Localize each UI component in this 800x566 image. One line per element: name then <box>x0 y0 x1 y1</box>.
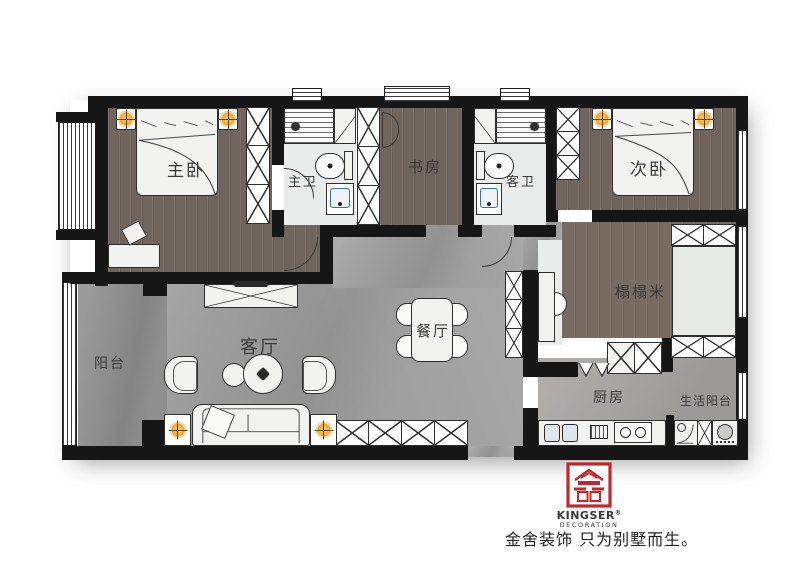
lamp-icon <box>317 424 330 437</box>
second-bed <box>612 108 694 196</box>
study-window <box>384 86 450 102</box>
label-service-balcony: 生活阳台 <box>680 392 732 409</box>
wall-study-guestbath <box>462 96 474 237</box>
coffee-table-large <box>243 354 283 394</box>
bay-window-cap-top <box>56 112 108 122</box>
master-toilet <box>315 153 345 179</box>
master-wardrobe <box>246 108 270 224</box>
bedroom2-wardrobe <box>556 108 580 180</box>
tatami-desk <box>538 272 555 342</box>
label-master-bath: 主卫 <box>288 171 318 190</box>
wall-bedroom2-bottom-a <box>546 210 558 222</box>
bedroom2-nightstand-left <box>592 108 612 130</box>
registered-mark: ® <box>615 509 622 516</box>
master-toilet-tank <box>344 151 353 180</box>
washing-machine <box>712 420 738 446</box>
label-kitchen: 厨房 <box>593 387 625 407</box>
brand-slogan: 金舍装饰 只为别墅而生。 <box>505 526 698 550</box>
kitchen-folding-door <box>578 362 610 378</box>
guest-bath-sink <box>476 183 502 215</box>
kitchen-upper-cabinet <box>608 342 662 374</box>
label-study: 书房 <box>408 156 442 177</box>
wall-kitchen-balcony-divider <box>666 415 674 446</box>
tatami-window <box>737 226 748 318</box>
tv-icon <box>234 281 268 287</box>
master-nightstand-left <box>116 108 136 130</box>
armchair-right <box>302 356 336 394</box>
second-bedroom-window <box>737 130 748 210</box>
tv-stand <box>204 284 298 308</box>
tatami-platform <box>672 246 736 336</box>
sofa <box>192 404 310 446</box>
wall-bedroom2-bottom-b <box>592 210 736 222</box>
lamp-icon <box>171 424 184 437</box>
label-master-bedroom: 主卧 <box>167 156 205 181</box>
entrance-threshold <box>468 446 514 457</box>
shower-head-icon <box>530 122 539 131</box>
guest-bath-shelf <box>474 108 496 144</box>
guest-bath-shower <box>496 108 546 144</box>
label-second-bedroom: 次卧 <box>630 155 668 180</box>
bay-window-cap-bottom <box>56 230 108 240</box>
bay-window <box>58 122 96 230</box>
service-balcony-window <box>737 372 748 420</box>
master-desk <box>108 244 160 268</box>
tatami-cabinet-bottom <box>672 336 736 358</box>
kitchen-stove <box>614 422 652 443</box>
balcony-window <box>62 282 77 446</box>
master-bath-shower <box>284 108 334 144</box>
lamp-icon <box>698 113 711 126</box>
master-bed <box>136 108 218 196</box>
label-dining-room: 餐厅 <box>416 320 450 341</box>
master-bath-window <box>292 88 322 102</box>
wall-corridor-pier-c <box>514 225 556 237</box>
label-balcony: 阳台 <box>94 353 126 373</box>
service-balcony-cabinet <box>698 420 712 446</box>
kingser-logo-icon <box>566 462 612 508</box>
guest-bath-window <box>500 88 530 102</box>
armchair-left <box>164 356 198 394</box>
wall-corridor-study <box>333 225 426 237</box>
kitchen-dish-rack <box>590 425 608 439</box>
label-guest-bath: 客卫 <box>506 171 536 190</box>
wall-guestbath-bedroom2 <box>546 96 556 222</box>
shower-head-icon <box>291 122 300 131</box>
master-nightstand-right <box>218 108 238 130</box>
hall-tall-cabinet <box>357 108 380 225</box>
wall-kitchen-north <box>538 362 578 377</box>
wall-bottom-east <box>514 446 748 460</box>
wall-entry-east <box>523 270 538 377</box>
sofa-side-table-right <box>310 414 337 446</box>
entry-shoe-cabinet <box>505 272 523 358</box>
wall-corridor-pier-a <box>272 225 284 237</box>
service-basin-cabinet <box>674 420 698 446</box>
lamp-icon <box>120 113 133 126</box>
tatami-cabinet-top <box>672 224 736 246</box>
lamp-icon <box>222 113 235 126</box>
kitchen-sink <box>544 424 578 442</box>
balcony-pier-top <box>143 284 167 296</box>
wall-tv <box>70 272 333 284</box>
wall-kitchen-west <box>523 408 538 446</box>
master-bath-sink <box>326 183 354 215</box>
wall-master-entry-east <box>320 225 333 275</box>
label-living-room: 客厅 <box>240 333 280 359</box>
label-tatami: 榻榻米 <box>615 281 666 302</box>
lamp-icon <box>596 113 609 126</box>
bedroom2-nightstand-right <box>694 108 714 130</box>
floorplan-canvas: 主卧 主卫 书房 客卫 次卧 榻榻米 阳台 客厅 餐厅 厨房 生活阳台 KING… <box>0 0 800 566</box>
wall-master-bath-upper <box>272 96 284 165</box>
living-storage-cabinet <box>336 420 468 446</box>
wall-bottom-west <box>62 446 468 460</box>
master-bath-shelf <box>334 108 356 144</box>
wall-left-upper <box>95 96 108 286</box>
sofa-side-table-left <box>164 414 191 446</box>
